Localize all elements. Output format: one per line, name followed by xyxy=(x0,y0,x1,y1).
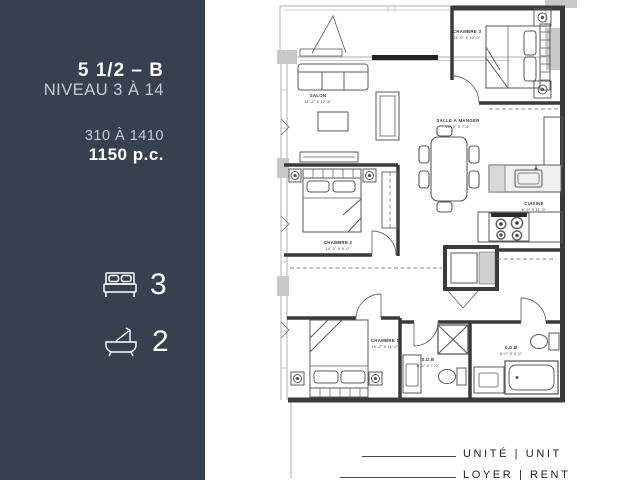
bathroom1-fixtures xyxy=(403,325,468,393)
room-label-salon: SALON xyxy=(310,93,327,98)
room-label-sdb2: S.D.B xyxy=(505,345,518,350)
walls xyxy=(284,6,565,400)
room-dims-cuisine: 8'-6" X 11'-0" xyxy=(522,208,547,212)
bathrooms-stat: 2 xyxy=(103,326,169,357)
chambre3-furniture xyxy=(486,9,551,98)
unit-area: 1150 p.c. xyxy=(44,145,164,165)
room-dims-chambre3: 11'-0" X 10'-0" xyxy=(454,36,481,40)
bathtub-icon xyxy=(103,326,139,357)
room-label-salle-a-manger: SALLE À MANGER xyxy=(436,118,480,123)
salon-furniture xyxy=(298,49,399,162)
room-label-chambre2: CHAMBRE 2 xyxy=(324,240,353,245)
room-dims-salon: 11'-2" X 12'-6" xyxy=(305,100,332,104)
unit-numbers: 310 À 1410 xyxy=(44,128,164,145)
room-dims-salle-a-manger: 10'-0" X 7'-6" xyxy=(446,125,471,129)
dining-table xyxy=(419,126,479,212)
room-dims-chambre1: 10'-0" X 11'-0" xyxy=(372,345,399,349)
brochure-page: SALON 11'-2" X 12'-6" CHAMBRE 3 11'-0" X… xyxy=(0,0,640,480)
unit-fill-label: UNITÉ | UNIT xyxy=(463,448,562,460)
unit-fill-line xyxy=(362,456,456,457)
room-label-chambre1: CHAMBRE 1 xyxy=(371,338,400,343)
rent-fill-line xyxy=(340,477,456,478)
chambre1-furniture xyxy=(291,320,382,397)
room-dims-chambre2: 10'-0" X 9'-0" xyxy=(326,247,351,251)
room-label-cuisine: CUISINE xyxy=(524,201,544,206)
level-range: NIVEAU 3 À 14 xyxy=(44,81,164,100)
room-dims-sdb2: 8'-0" X 5'-0" xyxy=(500,352,523,356)
chambre2-furniture xyxy=(289,169,398,232)
sidebar: 5 1/2 – B NIVEAU 3 À 14 310 À 1410 1150 … xyxy=(0,0,205,480)
bed-icon xyxy=(103,272,137,299)
rent-fill-label: LOYER | RENT xyxy=(463,469,570,480)
room-label-chambre3: CHAMBRE 3 xyxy=(453,29,482,34)
room-dims-sdb1: 6'-2" X 7'-0" xyxy=(417,364,440,368)
unit-type-title: 5 1/2 – B xyxy=(44,60,164,81)
bathroom-count: 2 xyxy=(152,327,169,357)
window-markers xyxy=(281,119,289,338)
bedroom-count: 3 xyxy=(150,270,167,300)
room-label-sdb1: S.D.B xyxy=(422,357,435,362)
bathroom2-fixtures xyxy=(474,333,559,394)
unit-info: 5 1/2 – B NIVEAU 3 À 14 310 À 1410 1150 … xyxy=(44,60,164,165)
bedrooms-stat: 3 xyxy=(103,270,167,300)
